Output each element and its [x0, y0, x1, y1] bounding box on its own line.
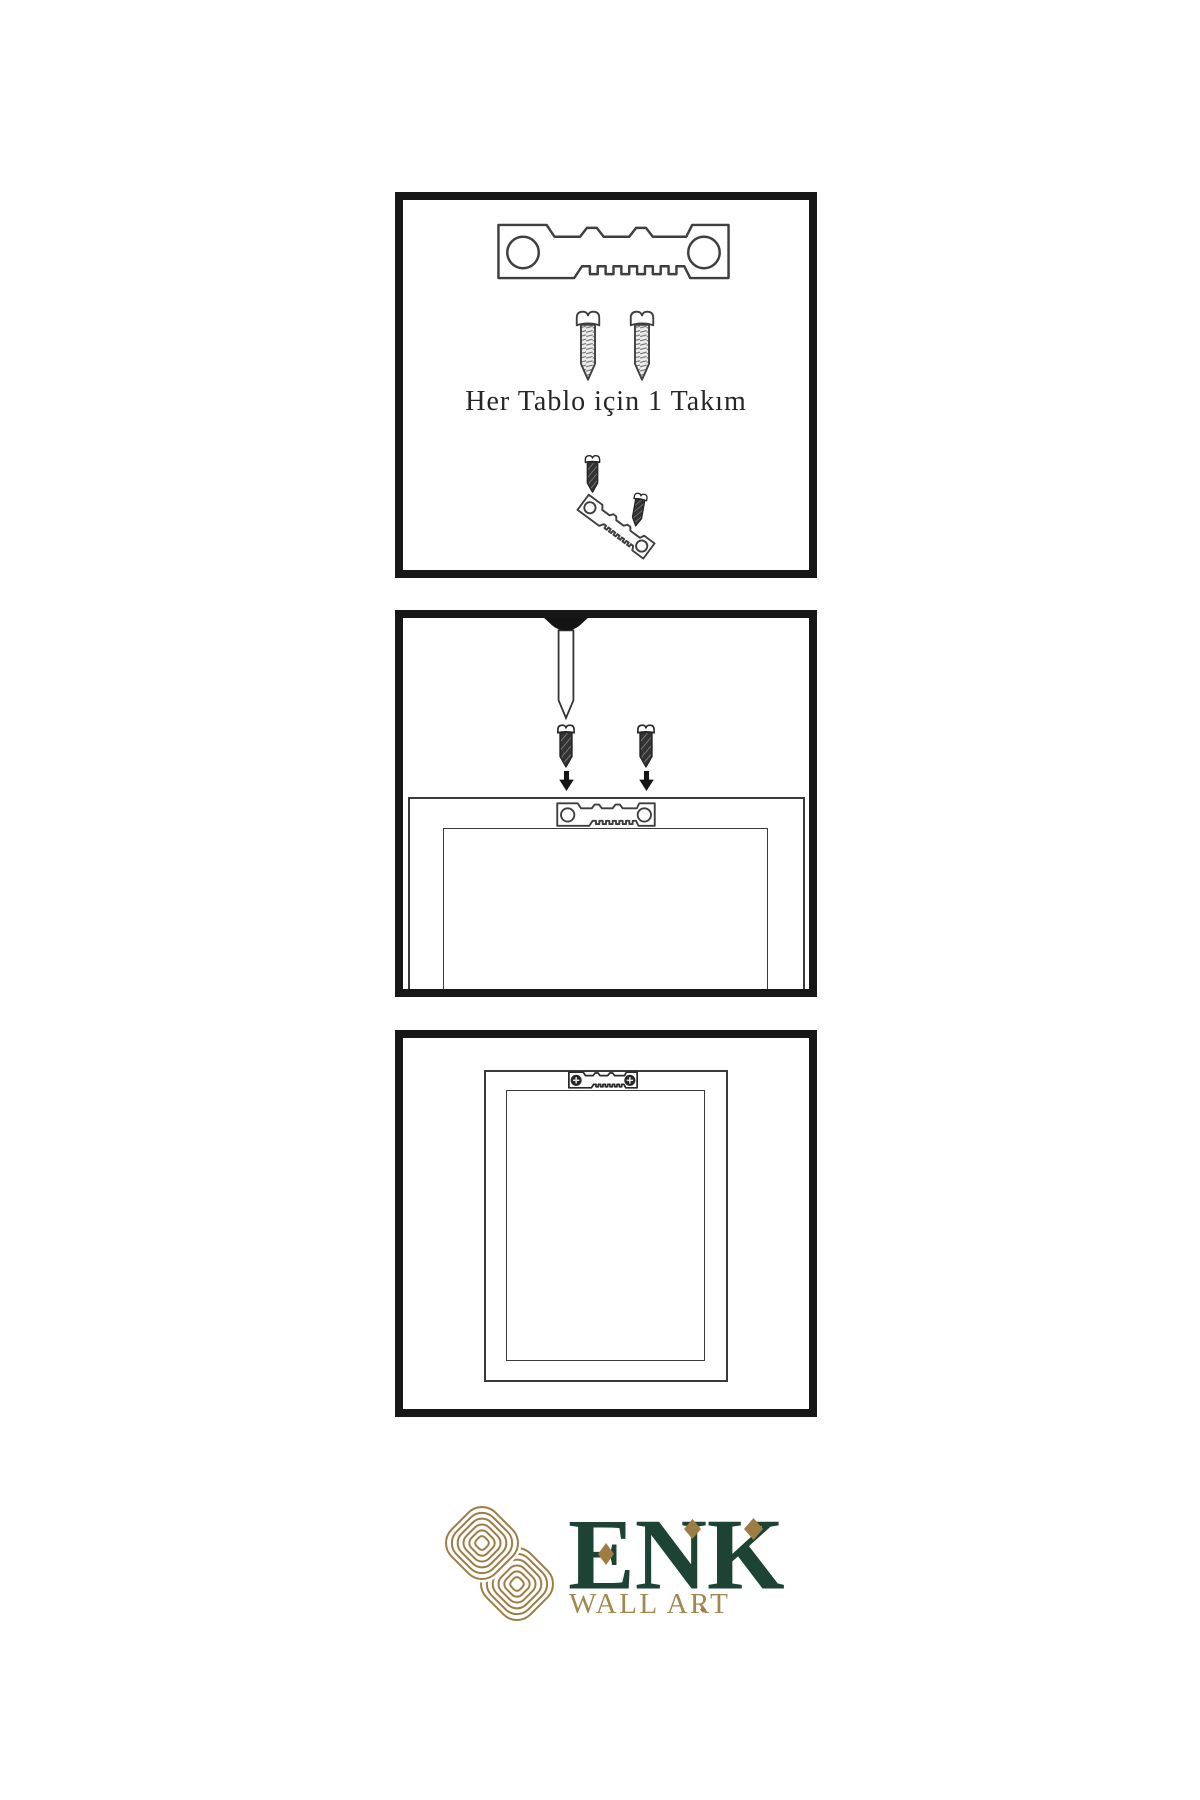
down-arrow-icon: [639, 771, 654, 791]
dark-screw-icon: [583, 452, 602, 495]
step-2-panel: [395, 610, 817, 997]
dark-screw-icon: [635, 722, 657, 769]
hanging-frame-inner-edge: [506, 1090, 705, 1361]
wall-nail-icon: [543, 618, 589, 721]
hanger-assembly-icon: [403, 200, 809, 570]
down-arrow-icon: [559, 771, 574, 791]
step-3-panel: [395, 1030, 817, 1417]
frame-back-inner-edge: [443, 828, 768, 997]
brand-logo: ENK WALL ART: [438, 1496, 798, 1636]
step-1-panel: Her Tablo için 1 Takım: [395, 192, 817, 578]
dark-screw-icon: [627, 490, 650, 529]
dark-screw-icon: [555, 722, 577, 769]
sawtooth-hanger-icon: [553, 802, 659, 827]
brand-tagline: WALL ART: [569, 1590, 730, 1619]
instruction-sheet: Her Tablo için 1 Takım: [0, 0, 1200, 1800]
mounted-hanger-icon: [568, 1071, 638, 1089]
knot-logo-icon: [438, 1496, 562, 1632]
